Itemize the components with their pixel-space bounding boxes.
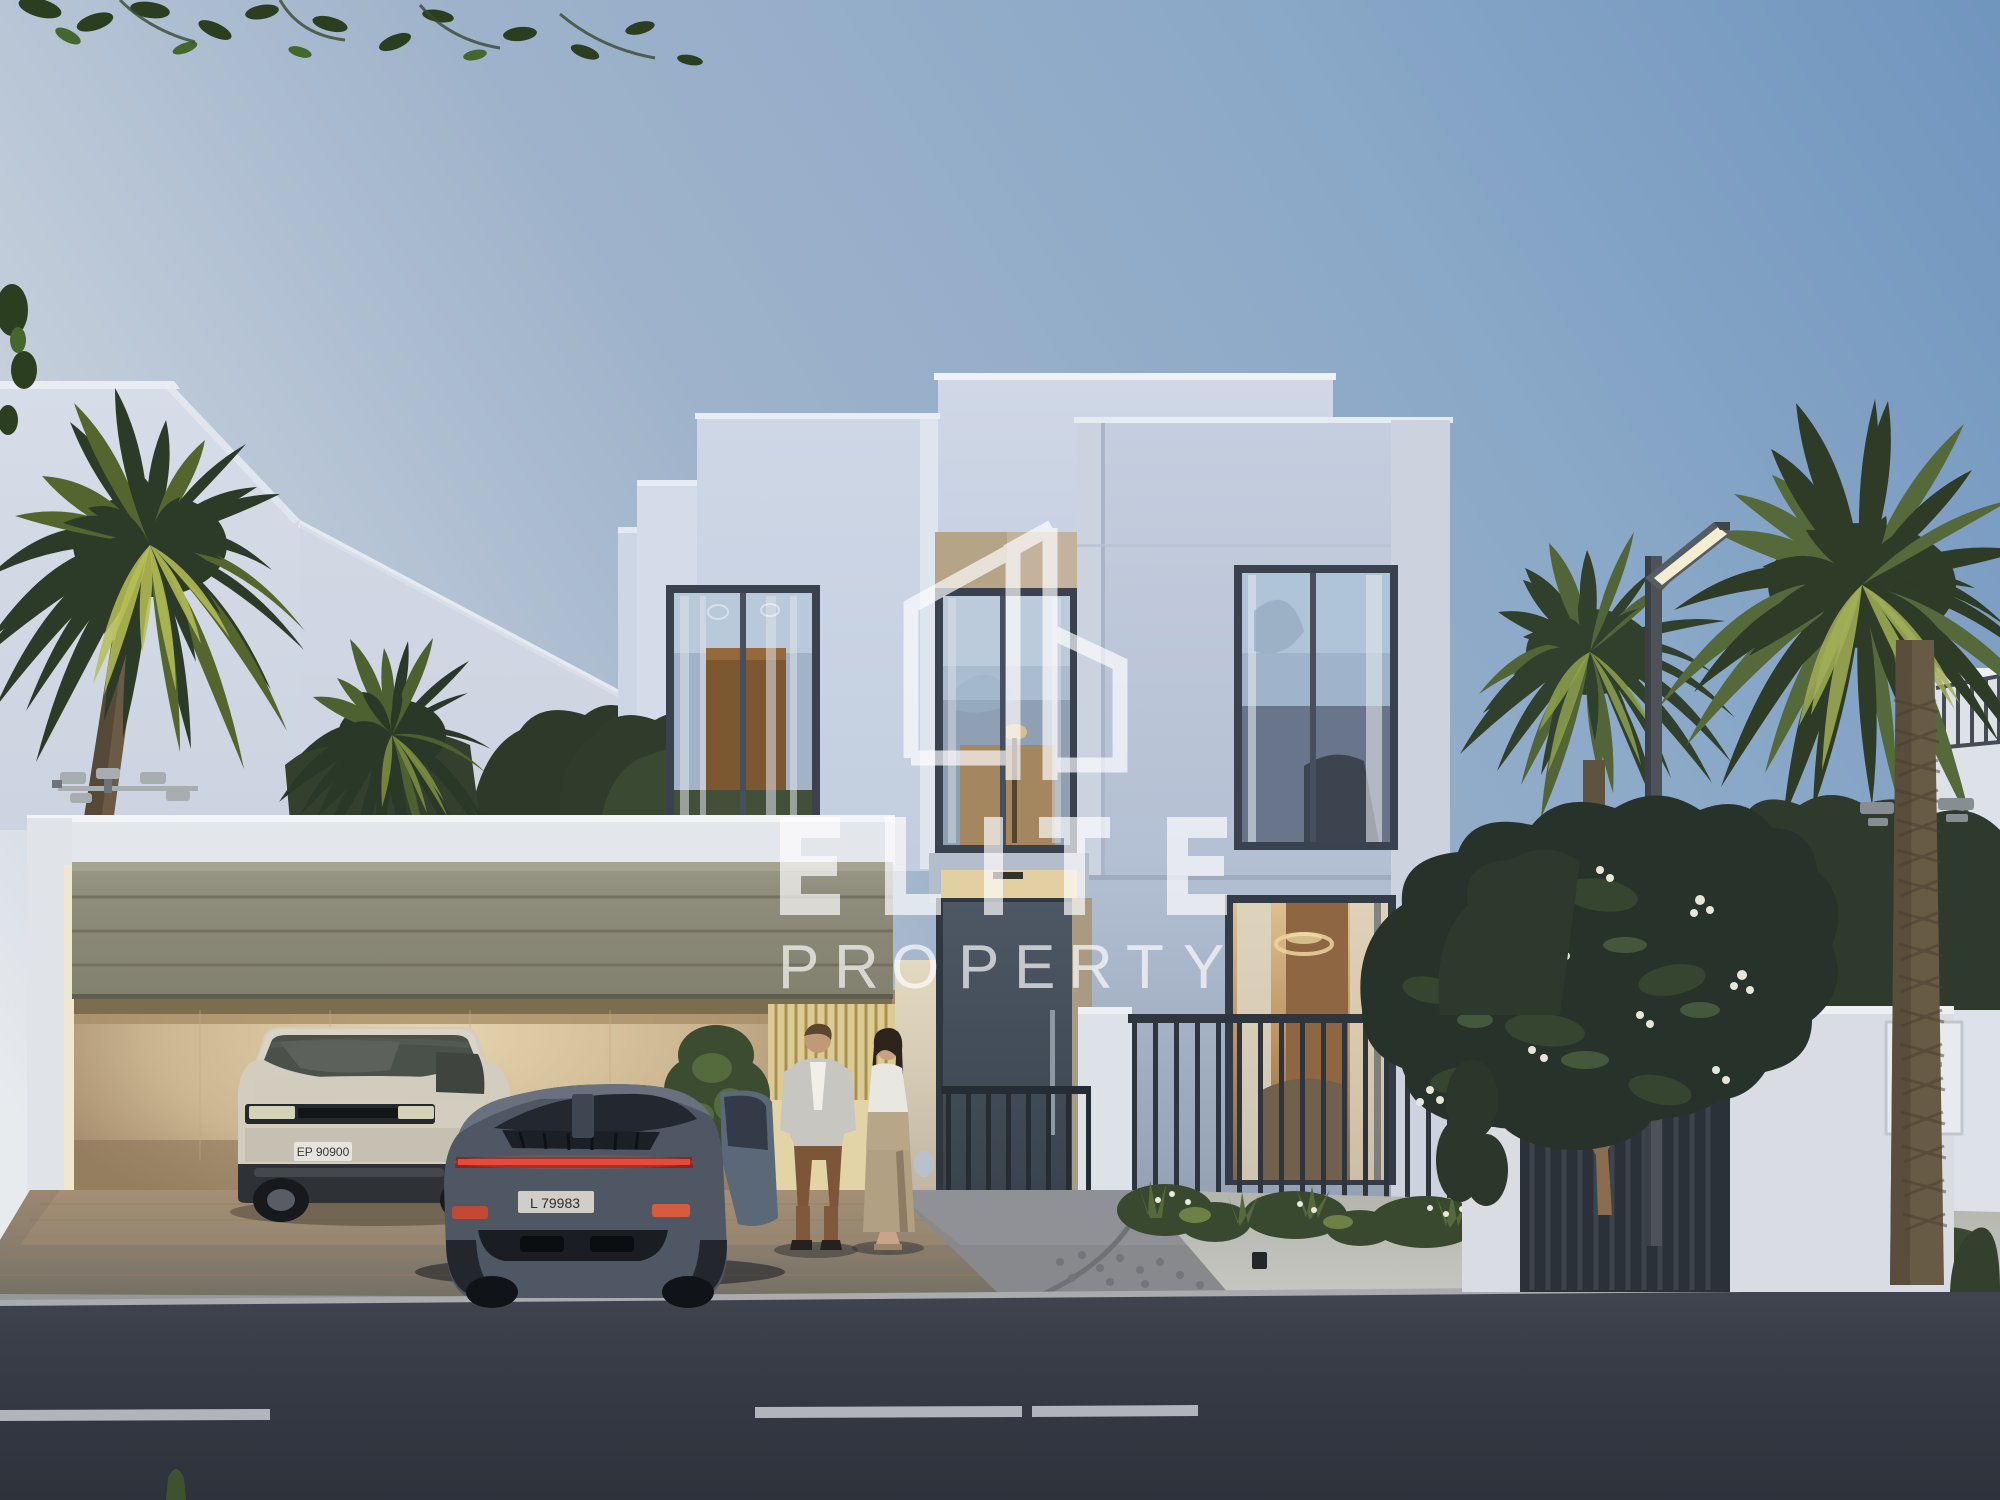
svg-text:E: E xyxy=(1014,933,1055,1002)
svg-text:P: P xyxy=(778,933,819,1002)
svg-text:L 79983: L 79983 xyxy=(530,1195,580,1211)
svg-text:R: R xyxy=(1068,933,1113,1002)
svg-text:P: P xyxy=(958,933,999,1002)
svg-text:Y: Y xyxy=(1183,933,1224,1002)
svg-text:EP 90900: EP 90900 xyxy=(297,1145,350,1159)
svg-text:O: O xyxy=(891,933,939,1002)
svg-text:R: R xyxy=(834,933,879,1002)
svg-text:T: T xyxy=(1126,933,1164,1002)
